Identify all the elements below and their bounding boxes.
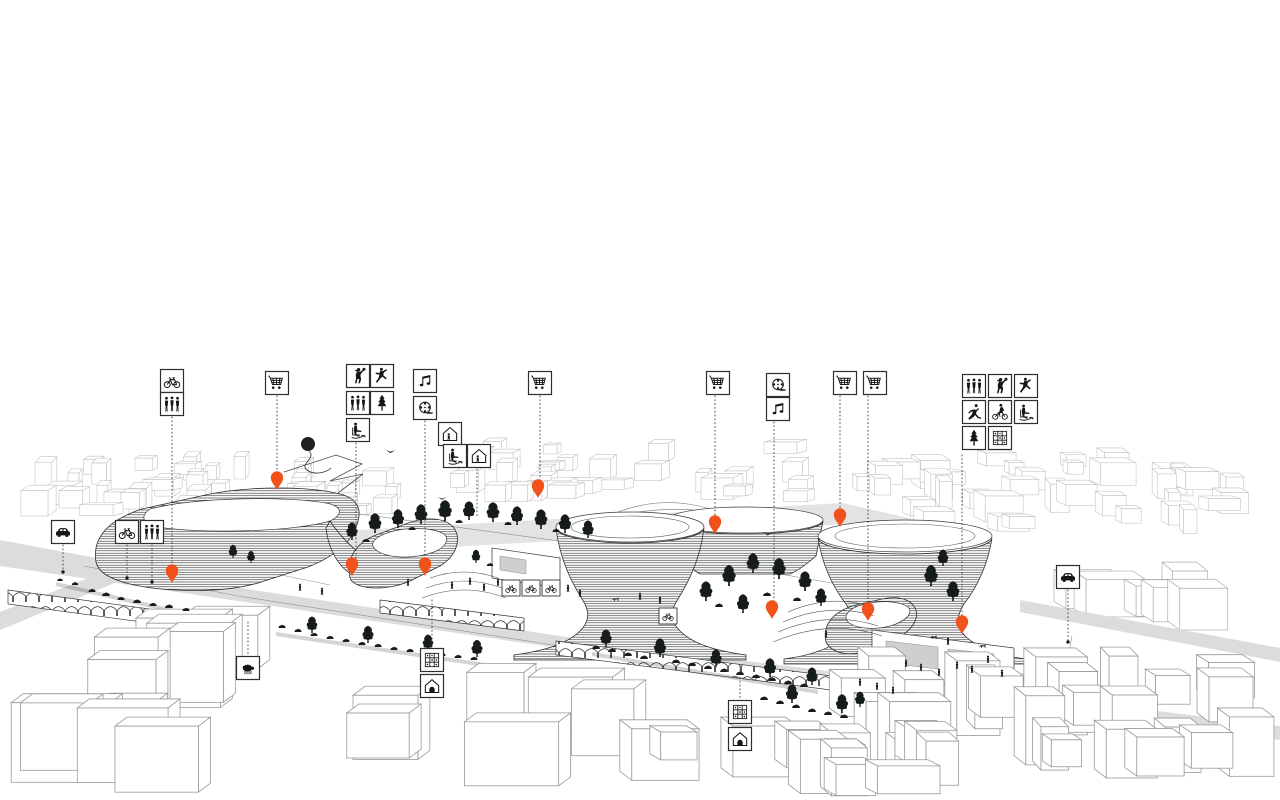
legend-box (468, 445, 491, 468)
legend-box (161, 370, 184, 393)
dance-icon (371, 365, 394, 388)
tree (463, 501, 475, 520)
bush (375, 644, 382, 647)
bike-parking-sign (542, 580, 560, 596)
bird-silhouette (386, 450, 395, 453)
tree (737, 594, 749, 613)
bush (57, 578, 63, 581)
bush (792, 705, 800, 708)
bicycle-icon (161, 370, 184, 393)
basketball-icon (989, 375, 1012, 398)
bush (763, 593, 771, 596)
cycling-icon (989, 401, 1012, 424)
bike-parking-sign (522, 580, 540, 596)
tree (471, 640, 482, 657)
bush (295, 629, 302, 632)
bush (165, 605, 173, 608)
legend-box (414, 370, 437, 393)
shopping-icon (864, 372, 887, 395)
cinema-icon (414, 397, 437, 420)
shopping-icon (707, 372, 730, 395)
basketball-icon (347, 365, 370, 388)
bush (793, 598, 801, 601)
legend-box (834, 372, 857, 395)
bush (343, 639, 350, 642)
legend-box (266, 372, 289, 395)
tree (487, 502, 500, 522)
city-block-cluster (451, 438, 815, 502)
balloon (301, 437, 331, 473)
bush (776, 701, 784, 704)
bush (808, 709, 816, 712)
pedestrians-icon (963, 375, 986, 398)
legend-box (421, 675, 444, 698)
pedestrians-icon (141, 521, 164, 544)
car-icon (1057, 566, 1080, 589)
tree (700, 581, 713, 601)
bush (359, 642, 366, 645)
tree (307, 617, 318, 634)
bush (183, 608, 190, 611)
hedge-shadow-center (276, 632, 492, 668)
cinema-icon (767, 374, 790, 397)
bike-parking-sign (659, 608, 677, 624)
housing-icon (729, 728, 752, 751)
bush (150, 603, 157, 606)
bush (471, 657, 478, 660)
garden-plots-icon (729, 701, 752, 724)
bush (279, 625, 286, 628)
bike-parking-sign (502, 580, 520, 596)
music-icon (414, 370, 437, 393)
petting-farm-icon (237, 657, 260, 680)
person-silhouette (483, 584, 486, 591)
bush (407, 649, 414, 652)
bush (311, 633, 318, 636)
pedestrians-icon (347, 392, 370, 415)
city-block-cluster (347, 663, 646, 785)
legend-box (529, 372, 552, 395)
legend-box (439, 423, 462, 446)
person-silhouette (321, 588, 324, 595)
running-icon (963, 401, 986, 424)
community-house-icon (468, 445, 491, 468)
garden-plots-icon (421, 649, 444, 672)
housing-icon (421, 675, 444, 698)
rest-chair-icon (444, 445, 467, 468)
person-silhouette (567, 585, 570, 592)
tree-icon (963, 427, 986, 450)
bush (715, 604, 723, 607)
music-icon (767, 398, 790, 421)
tree (362, 626, 373, 643)
map-pin-icon (766, 600, 778, 619)
tree (472, 550, 481, 563)
rest-chair-icon (1015, 401, 1038, 424)
legend-box (707, 372, 730, 395)
dance-icon (1015, 375, 1038, 398)
shopping-icon (834, 372, 857, 395)
tree (799, 571, 812, 591)
leader-end-dot (61, 570, 64, 573)
map-pin-icon (271, 471, 283, 490)
city-block-cluster (1152, 462, 1248, 533)
person-silhouette (451, 582, 454, 589)
car-icon (52, 521, 75, 544)
funnel-right-top (818, 520, 992, 552)
garden-plots-icon (989, 427, 1012, 450)
bush (824, 712, 832, 715)
bush (456, 520, 463, 523)
legend-box (864, 372, 887, 395)
bicycle-icon (116, 521, 139, 544)
bush (455, 655, 462, 658)
bird-silhouette (438, 497, 447, 500)
person-silhouette (469, 578, 472, 585)
city-block-cluster (620, 717, 1082, 796)
funnel-main-top (556, 512, 704, 542)
legend-box (116, 521, 139, 544)
person-silhouette (407, 579, 410, 586)
leader-end-dot (125, 576, 128, 579)
bush (760, 697, 768, 700)
rest-chair-icon (347, 419, 370, 442)
tree-icon (371, 392, 394, 415)
bush (391, 647, 398, 650)
person-silhouette (497, 579, 500, 586)
shopping-icon (529, 372, 552, 395)
masterplan-illustration (0, 0, 1280, 800)
community-house-icon (439, 423, 462, 446)
city-block-cluster (11, 693, 210, 792)
person-silhouette (299, 584, 302, 591)
tree (438, 500, 451, 521)
shopping-icon (266, 372, 289, 395)
leader-end-dot (1066, 640, 1069, 643)
leader-end-dot (150, 580, 153, 583)
legend-box (767, 398, 790, 421)
pedestrians-icon (161, 393, 184, 416)
bush (327, 636, 334, 639)
legend-box (729, 728, 752, 751)
